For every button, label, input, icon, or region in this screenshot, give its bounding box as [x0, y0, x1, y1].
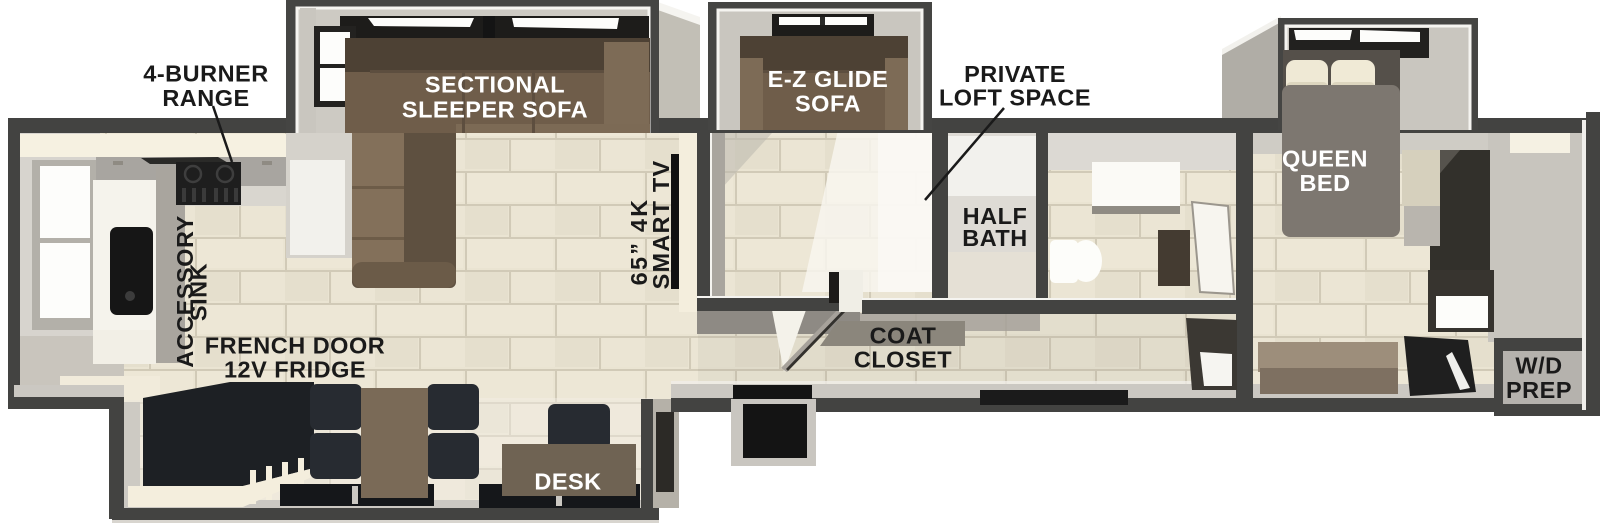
svg-text:RANGE: RANGE [162, 85, 249, 111]
svg-text:SECTIONAL: SECTIONAL [425, 72, 565, 98]
svg-text:LOFT SPACE: LOFT SPACE [939, 85, 1091, 111]
svg-text:COAT: COAT [870, 323, 937, 349]
svg-text:PREP: PREP [1506, 377, 1572, 403]
svg-text:E-Z GLIDE: E-Z GLIDE [768, 66, 889, 92]
svg-text:SOFA: SOFA [795, 91, 861, 117]
svg-text:PRIVATE: PRIVATE [964, 61, 1066, 87]
svg-text:SINK: SINK [186, 263, 212, 321]
svg-text:BED: BED [1299, 170, 1350, 196]
svg-text:CLOSET: CLOSET [854, 347, 952, 373]
svg-text:W/D: W/D [1515, 353, 1562, 379]
svg-text:DESK: DESK [534, 469, 601, 495]
svg-text:12V FRIDGE: 12V FRIDGE [224, 357, 366, 383]
svg-text:4-BURNER: 4-BURNER [143, 61, 268, 87]
svg-text:BATH: BATH [962, 225, 1028, 251]
svg-text:FRENCH DOOR: FRENCH DOOR [205, 333, 385, 359]
svg-text:SMART TV: SMART TV [648, 160, 674, 290]
svg-text:QUEEN: QUEEN [1282, 146, 1368, 172]
svg-text:SLEEPER SOFA: SLEEPER SOFA [402, 97, 588, 123]
